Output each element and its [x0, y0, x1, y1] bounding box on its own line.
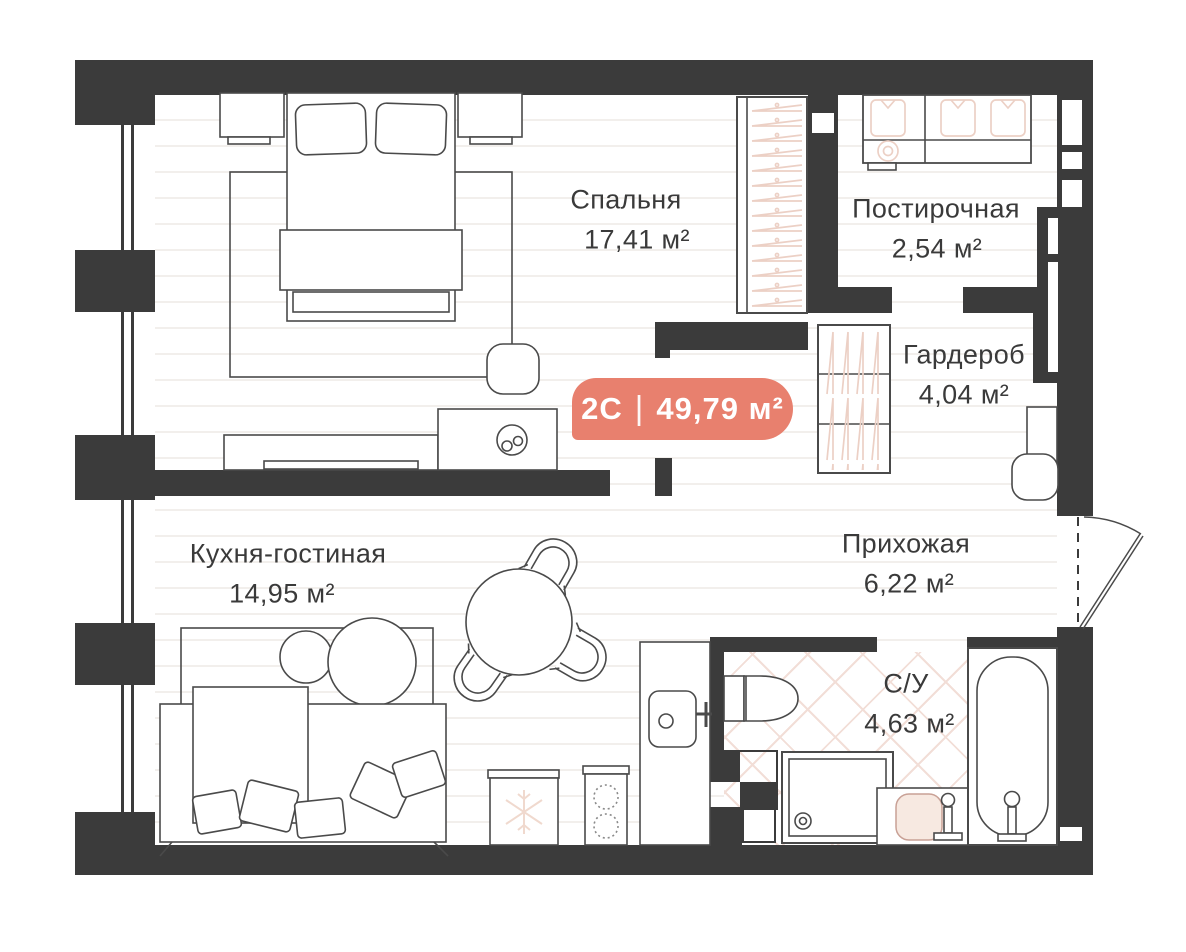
apartment-type: 2С	[581, 391, 623, 427]
room-name: Постирочная	[852, 194, 1020, 224]
room-area: 4,63 м²	[864, 709, 954, 740]
apartment-area: 49,79 м²	[656, 391, 783, 427]
entry-door-swing-icon	[1078, 517, 1143, 629]
room-area: 2,54 м²	[854, 234, 1020, 265]
toilet-icon	[724, 676, 798, 721]
vanity-sink-icon	[877, 788, 975, 845]
room-label-bedroom: Спальня 17,41 м²	[562, 185, 690, 256]
room-name: Спальня	[570, 185, 681, 215]
room-name: Прихожая	[842, 529, 970, 559]
dining-table-icon	[466, 569, 572, 675]
room-area: 6,22 м²	[848, 569, 970, 600]
bed-icon	[280, 93, 462, 321]
wardrobe-hangers-icon	[737, 97, 807, 313]
room-name: С/У	[883, 669, 928, 699]
wardrobe-hangers-icon	[818, 325, 890, 473]
apartment-badge: 2С | 49,79 м²	[572, 378, 793, 440]
sofa-icon	[160, 687, 448, 856]
room-name: Кухня-гостиная	[190, 539, 387, 569]
tv-console-icon	[224, 435, 438, 470]
stove-icon	[583, 766, 629, 845]
fridge-snowflake-icon	[488, 770, 559, 845]
room-label-wardrobe: Гардероб 4,04 м²	[903, 340, 1025, 411]
room-area: 4,04 м²	[903, 380, 1025, 411]
floor-plan: Спальня 17,41 м² Постирочная 2,54 м² Гар…	[0, 0, 1186, 952]
desk-icon	[438, 409, 557, 470]
pouf-icon	[487, 344, 539, 394]
room-label-kitchen-living: Кухня-гостиная 14,95 м²	[190, 539, 387, 610]
furniture-layer	[0, 0, 1186, 952]
room-area: 17,41 м²	[584, 225, 690, 256]
pouf-icon	[1012, 454, 1058, 500]
badge-divider: |	[635, 389, 645, 427]
room-label-bathroom: С/У 4,63 м²	[857, 669, 954, 740]
room-area: 14,95 м²	[178, 579, 387, 610]
room-name: Гардероб	[903, 340, 1025, 370]
room-label-hallway: Прихожая 6,22 м²	[842, 529, 970, 600]
bathtub-icon	[968, 648, 1057, 845]
washer-dryer-icon	[863, 95, 1031, 170]
room-label-laundry: Постирочная 2,54 м²	[852, 194, 1020, 265]
